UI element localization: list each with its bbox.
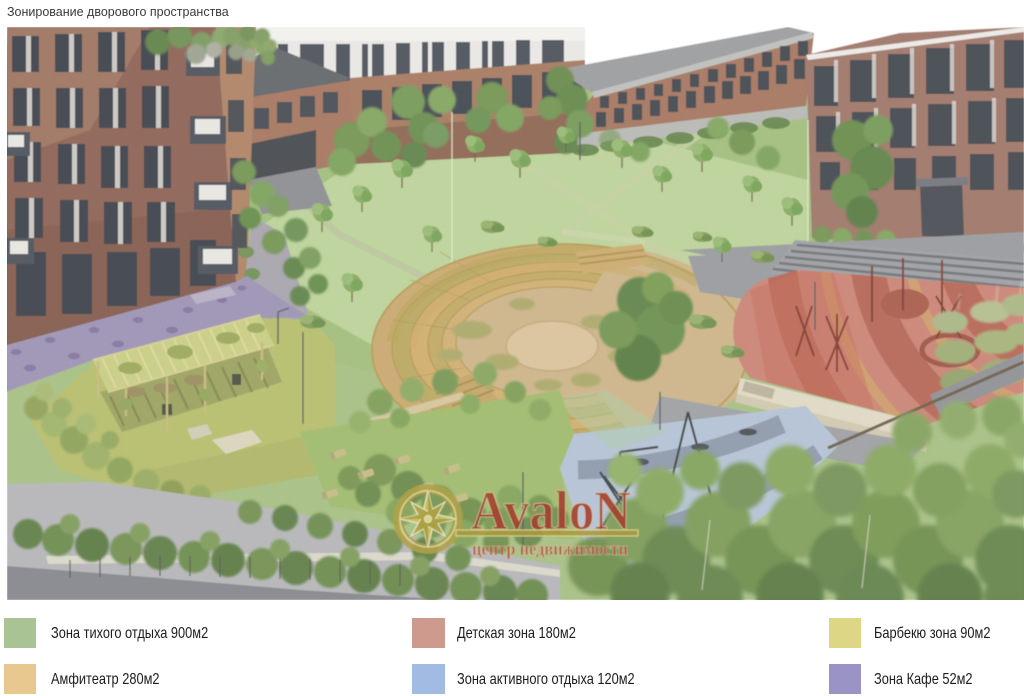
svg-text:AvaloN: AvaloN: [471, 480, 631, 541]
svg-text:центр недвижимости: центр недвижимости: [472, 539, 628, 560]
